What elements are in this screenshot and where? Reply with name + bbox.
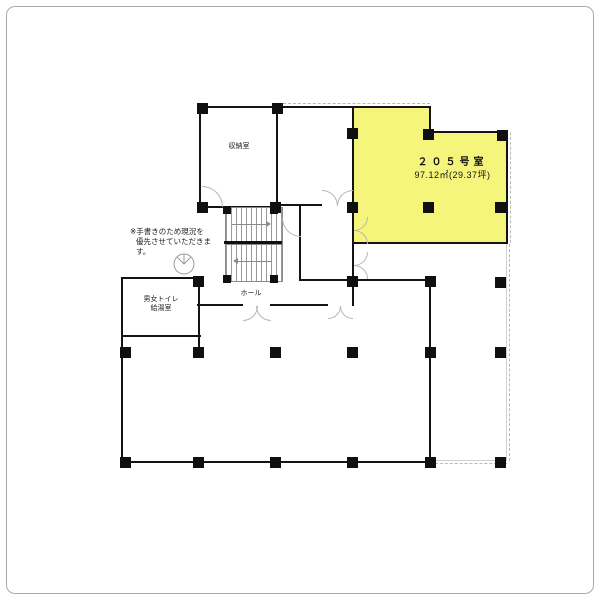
wall (200, 106, 430, 108)
room-205-label-group: ２０５号室 97.12㎡(29.37坪) (370, 157, 535, 181)
window-line (278, 103, 430, 105)
pillar (495, 457, 506, 468)
pillar (425, 457, 436, 468)
pillar (347, 457, 358, 468)
pillar (197, 103, 208, 114)
pillar (193, 276, 204, 287)
wall (276, 106, 278, 208)
pillar (347, 202, 358, 213)
floor-plan-drawing: ２０５号室 97.12㎡(29.37坪) 収納室 男女トイレ 給湯室 ホール ※… (0, 0, 600, 600)
pillar (272, 103, 283, 114)
toilet-label-line2: 給湯室 (126, 304, 196, 313)
wall (429, 279, 431, 463)
pillar (193, 457, 204, 468)
storage-room-label: 収納室 (214, 142, 264, 151)
pillar (193, 347, 204, 358)
toilet-room-label: 男女トイレ 給湯室 (126, 295, 196, 313)
pillar (270, 347, 281, 358)
wall (197, 304, 243, 306)
door-arc (354, 252, 368, 266)
pillar (495, 347, 506, 358)
window-line (506, 244, 507, 461)
wall (121, 277, 201, 279)
pillar (270, 457, 281, 468)
note-line2: 優先させていただきます。 (130, 237, 220, 257)
window-line (510, 132, 512, 243)
floor-plan: ２０５号室 97.12㎡(29.37坪) 収納室 男女トイレ 給湯室 ホール ※… (0, 0, 600, 600)
wall (199, 106, 201, 208)
wall (352, 242, 508, 244)
pillar (425, 347, 436, 358)
pillar (120, 347, 131, 358)
room-205-name: ２０５号室 (370, 157, 535, 170)
toilet-label-line1: 男女トイレ (126, 295, 196, 304)
door-arc (282, 218, 301, 237)
wall (270, 304, 328, 306)
hall-label: ホール (228, 289, 274, 298)
window-line (509, 244, 511, 461)
note-line1: ※手書きのため現況を (130, 227, 220, 237)
pillar (197, 202, 208, 213)
pillar (270, 275, 278, 283)
wall (506, 131, 508, 244)
door-arc (340, 306, 353, 319)
door-arc (322, 190, 338, 206)
pillar (223, 275, 231, 283)
wall (198, 277, 200, 353)
pillar (347, 128, 358, 139)
pillar (495, 277, 506, 288)
wall (299, 204, 301, 281)
pillar (423, 129, 434, 140)
wall (299, 279, 431, 281)
wall (121, 277, 123, 464)
pillar (347, 276, 358, 287)
pillar (423, 202, 434, 213)
pillar (425, 276, 436, 287)
pillar (497, 130, 508, 141)
pillar (223, 206, 231, 214)
room-205-area: 97.12㎡(29.37坪) (370, 170, 535, 181)
door-arc (328, 306, 341, 319)
pillar (495, 202, 506, 213)
pillar (347, 347, 358, 358)
door-arc (256, 306, 271, 321)
pillar (270, 206, 278, 214)
handwriting-note: ※手書きのため現況を 優先させていただきます。 (130, 227, 220, 257)
pillar (120, 457, 131, 468)
wall (121, 335, 201, 337)
